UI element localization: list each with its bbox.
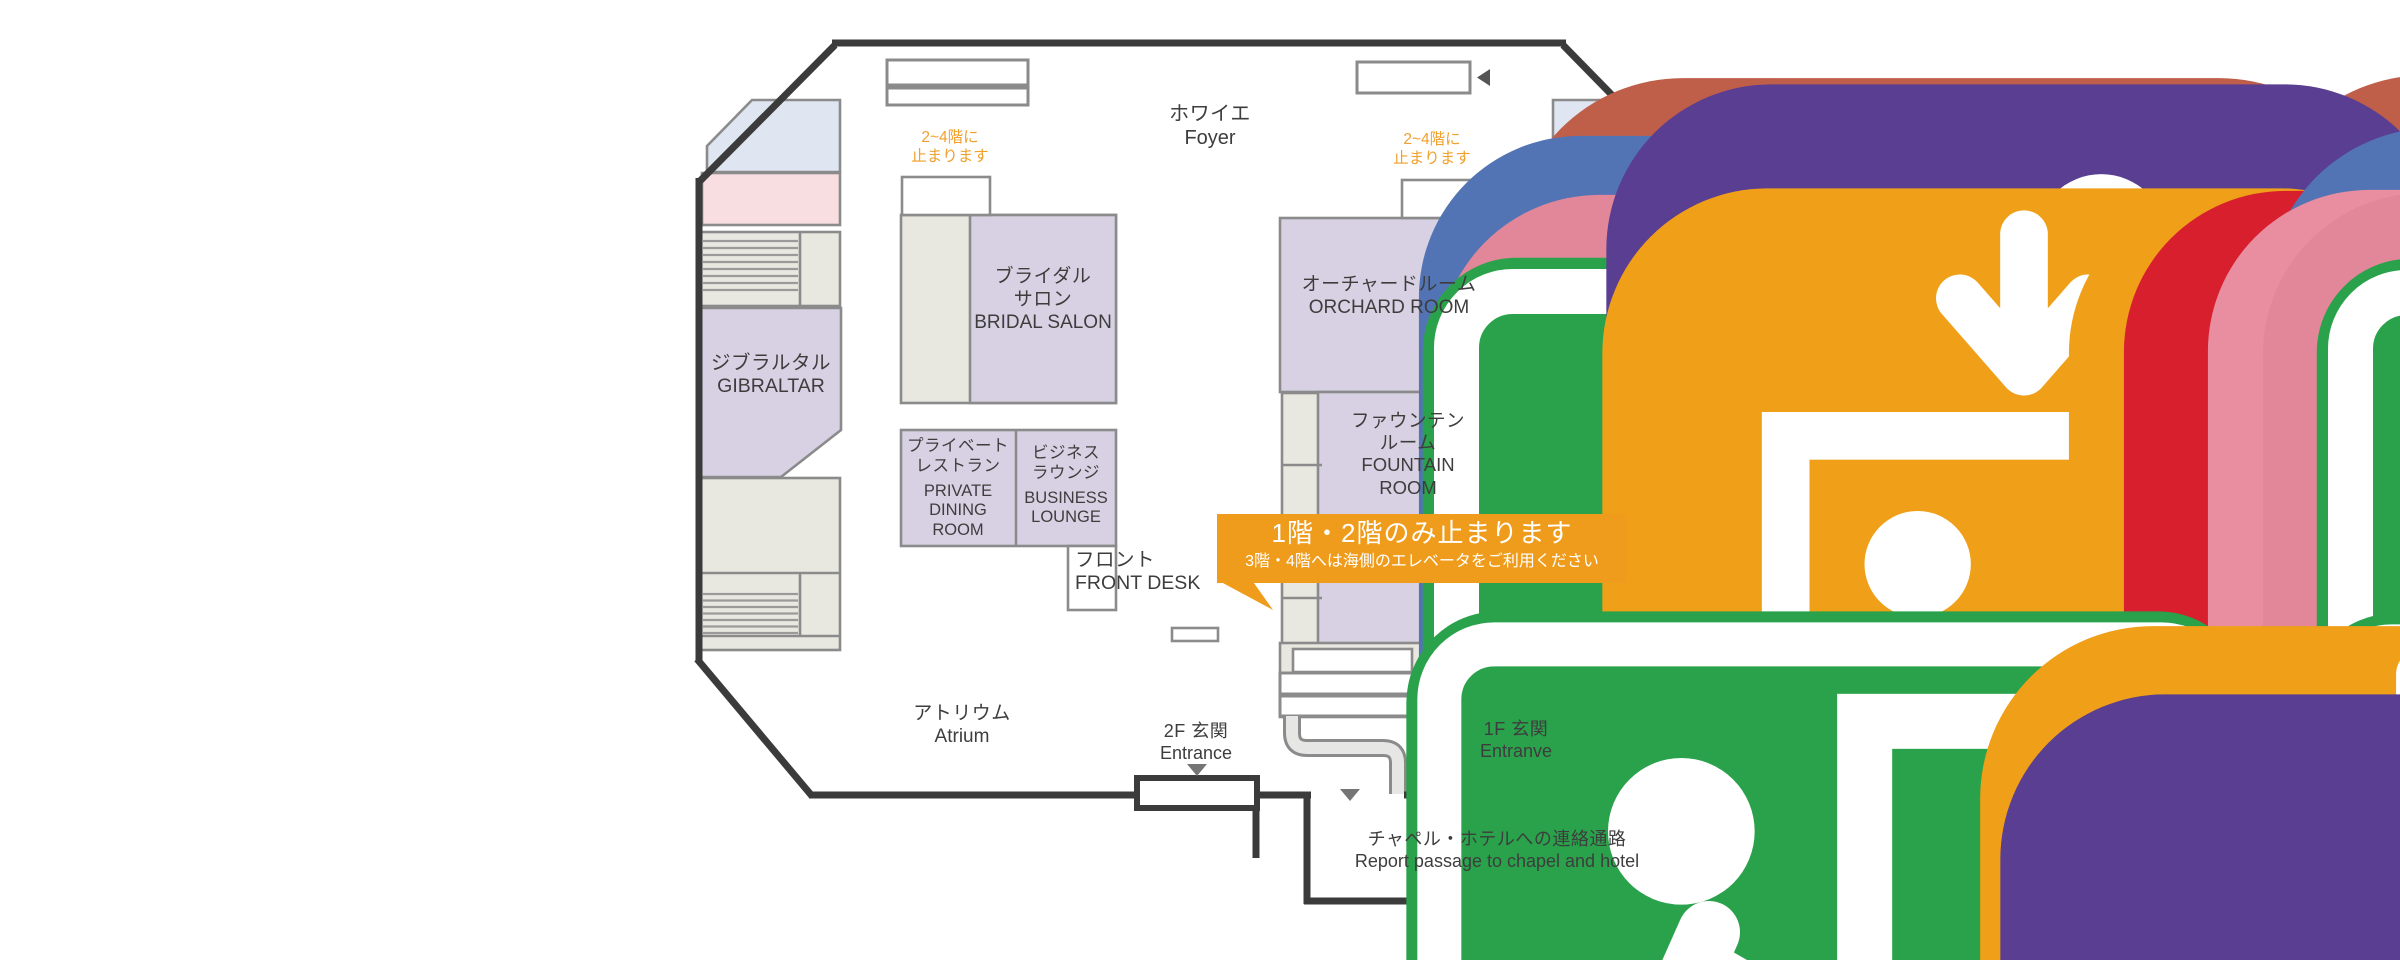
elevator-note-right: 2~4階に 止まります [1393,130,1471,169]
room-restroom-left-women [702,173,840,225]
stairs-arrow-left-icon [1477,69,1490,86]
label-passage: チャペル・ホテルへの連絡通路 Report passage to chapel … [1355,829,1639,872]
label-atrium: アトリウム Atrium [913,703,1011,749]
driveway-arrow [1340,789,1360,801]
driveway-path [1292,716,1398,794]
foyer-jp: ホワイエ [1169,102,1251,126]
label-private-dining: プライベート レストラン PRIVATE DINING ROOM [907,437,1009,541]
stairs-bottom-center [1293,649,1412,672]
elevator-note-left: 2~4階に 止まります [911,128,989,167]
label-entrance-2f: 2F 玄関 Entrance [1160,721,1232,764]
label-business-lounge: ビジネス ラウンジ BUSINESS LOUNGE [1024,444,1107,528]
label-orchard-room: オーチャードルーム ORCHARD ROOM [1302,274,1477,320]
label-gibraltar: ジブラルタル GIBRALTAR [711,352,831,399]
stairs-top-right [1357,62,1470,93]
escalator-top-rail [887,60,1028,85]
banner-title: 1階・2階のみ止まります [1217,514,1627,552]
escalator-top-rail [887,88,1028,105]
banner-subtitle: 3階・4階へは海側のエレベータをご利用ください [1217,552,1627,572]
floor-map-2f: ホワイエ Foyer 2~4階に 止まります 2~4階に 止まります ジブラルタ… [0,0,2400,960]
label-fountain-room: ファウンテン ルーム FOUNTAIN ROOM [1351,410,1465,499]
entrance-2f-arrow [1187,764,1207,776]
label-bridal-salon: ブライダル サロン BRIDAL SALON [974,266,1112,334]
foyer-en: Foyer [1169,126,1251,150]
label-entrance-1f: 1F 玄関 Entranve [1480,719,1552,762]
label-foyer: ホワイエ Foyer [1169,102,1251,150]
room-left-lower [700,478,840,650]
counter-small [1172,628,1218,641]
escalator-bottom-rail [1280,696,1420,716]
escalator-bottom-rail [1280,673,1420,694]
entrance-2f-door [1137,778,1257,808]
elevator-lobby-left [902,177,990,215]
label-front-desk: フロント FRONT DESK [1075,549,1200,596]
escalator-icon [2000,694,2400,960]
elevator-stop-banner: 1階・2階のみ止まります 3階・4階へは海側のエレベータをご利用ください [1217,514,1627,583]
